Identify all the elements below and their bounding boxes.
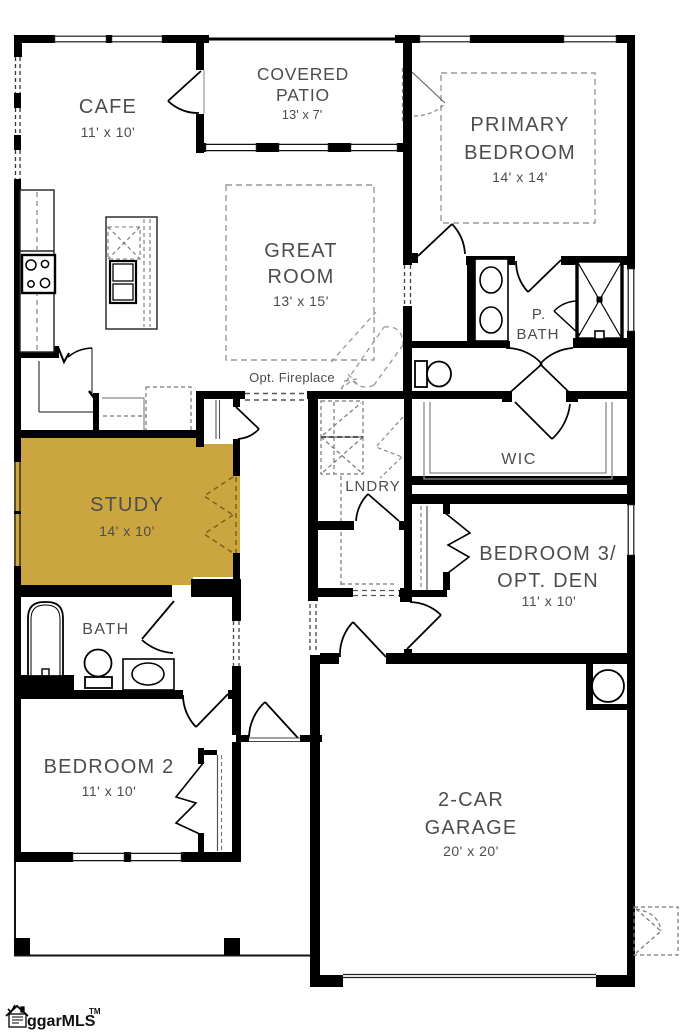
- svg-text:BEDROOM: BEDROOM: [464, 142, 576, 164]
- svg-text:LNDRY: LNDRY: [345, 478, 401, 495]
- svg-text:ggarMLS: ggarMLS: [27, 1013, 96, 1030]
- svg-text:13' x 15': 13' x 15': [273, 293, 329, 309]
- svg-text:11' x 10': 11' x 10': [522, 593, 577, 609]
- svg-text:STUDY: STUDY: [90, 494, 164, 516]
- svg-text:WIC: WIC: [501, 451, 537, 468]
- svg-text:CAFE: CAFE: [79, 96, 137, 118]
- svg-text:ROOM: ROOM: [267, 266, 334, 288]
- svg-text:11' x 10': 11' x 10': [81, 124, 136, 140]
- svg-text:BEDROOM 3/: BEDROOM 3/: [479, 543, 617, 565]
- svg-text:COVERED: COVERED: [257, 64, 349, 84]
- svg-text:PRIMARY: PRIMARY: [470, 114, 569, 136]
- svg-text:PATIO: PATIO: [276, 85, 330, 105]
- svg-text:2-CAR: 2-CAR: [438, 789, 504, 811]
- svg-text:20' x 20': 20' x 20': [443, 843, 499, 859]
- svg-text:13' x 7': 13' x 7': [282, 107, 322, 122]
- svg-text:11' x 10': 11' x 10': [82, 783, 137, 799]
- svg-text:GARAGE: GARAGE: [425, 817, 518, 839]
- svg-text:P.: P.: [532, 306, 546, 323]
- svg-text:BATH: BATH: [82, 621, 129, 638]
- svg-text:BEDROOM 2: BEDROOM 2: [44, 756, 175, 778]
- svg-text:GREAT: GREAT: [264, 240, 337, 262]
- svg-text:OPT. DEN: OPT. DEN: [497, 570, 599, 592]
- svg-text:BATH: BATH: [517, 326, 560, 343]
- svg-text:TM: TM: [89, 1007, 101, 1016]
- svg-text:Opt. Fireplace: Opt. Fireplace: [249, 370, 335, 385]
- svg-text:14' x 10': 14' x 10': [99, 523, 155, 539]
- svg-text:14' x 14': 14' x 14': [492, 169, 548, 185]
